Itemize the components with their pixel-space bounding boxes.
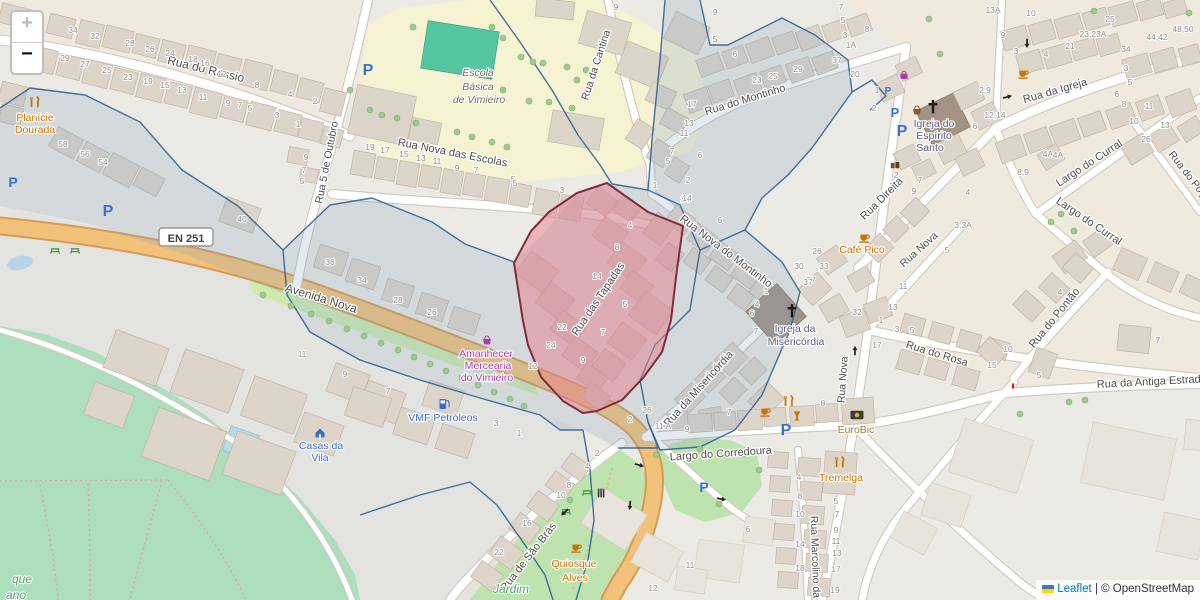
- house-number: 37: [832, 55, 842, 65]
- building: [777, 571, 798, 588]
- vmf-petroleos-label: VMF Petróleos: [408, 412, 477, 424]
- house-number: 40: [237, 214, 247, 224]
- house-number: 5: [1037, 370, 1042, 380]
- house-number: 7: [918, 175, 923, 185]
- house-number: 5: [841, 15, 846, 25]
- leaflet-link[interactable]: Leaflet: [1057, 583, 1092, 595]
- house-number: 26: [145, 44, 155, 54]
- ukraine-flag-icon: [1042, 585, 1054, 593]
- parking-icon: P: [699, 479, 708, 495]
- house-number: 19: [143, 76, 153, 86]
- house-number: 10: [1026, 8, 1036, 18]
- tree-icon: [530, 59, 536, 65]
- tree-icon: [308, 311, 314, 317]
- tree-icon: [410, 24, 416, 30]
- house-number: 2: [313, 96, 318, 106]
- house-number: 5: [910, 325, 915, 335]
- house-number: 34: [68, 25, 78, 35]
- tremelga-label: Tremelga: [819, 472, 863, 484]
- tree-icon: [394, 115, 400, 121]
- building: [799, 481, 822, 500]
- tree-icon: [413, 120, 419, 126]
- house-number: 12: [217, 69, 227, 79]
- house-number: 4: [755, 299, 760, 309]
- house-number: 10: [556, 490, 566, 500]
- house-number: 34: [357, 275, 367, 285]
- house-number: 17: [380, 145, 390, 155]
- house-number: 32: [90, 31, 100, 41]
- house-number: 8: [821, 398, 826, 408]
- zoom-in-button[interactable]: +: [12, 12, 42, 43]
- house-number: 3: [843, 30, 848, 40]
- house-number: 4: [797, 472, 802, 482]
- house-number: 8: [865, 24, 870, 34]
- house-number: 7: [754, 326, 759, 336]
- house-number: 11: [832, 536, 841, 546]
- house-number: 2: [686, 175, 691, 185]
- planicie-dourada-label: Planície: [16, 112, 54, 124]
- tree-icon: [260, 292, 266, 298]
- house-number: 25: [102, 65, 112, 75]
- house-number: 9: [713, 7, 718, 17]
- house-number: 12: [528, 361, 538, 371]
- house-number: 12;14: [984, 110, 1006, 120]
- tree-icon: [540, 60, 546, 66]
- house-number: 15: [399, 149, 409, 159]
- house-number: 24: [165, 48, 175, 58]
- house-number: 7: [835, 509, 840, 519]
- road-shield: EN 251: [159, 228, 213, 246]
- building: [775, 547, 796, 564]
- house-number: 32: [852, 307, 862, 317]
- house-number: 7: [302, 165, 307, 175]
- building: [1184, 419, 1200, 451]
- building: [374, 156, 398, 181]
- house-number: 37: [803, 277, 813, 287]
- igreja-espirito-santo-label: Santo: [916, 142, 944, 154]
- tree-icon: [288, 303, 294, 309]
- tree-icon: [500, 87, 506, 93]
- parking-icon: P: [8, 174, 17, 190]
- cafe-pico-label: Café Pico: [839, 244, 885, 256]
- house-number: 9: [226, 98, 231, 108]
- house-number: 22: [494, 547, 504, 557]
- park-label: que: [12, 572, 32, 586]
- house-number: 4: [628, 220, 633, 230]
- house-number: 13: [888, 302, 898, 312]
- zoom-out-button[interactable]: −: [12, 43, 42, 73]
- tree-icon: [489, 24, 495, 30]
- tree-icon: [546, 99, 552, 105]
- house-number: 6: [718, 215, 723, 225]
- house-number: 2: [595, 448, 600, 458]
- house-number: 58: [58, 139, 68, 149]
- parking-icon: P: [897, 123, 908, 140]
- house-number: 7: [670, 146, 675, 156]
- house-number: 13: [416, 153, 426, 163]
- house-number: 4: [585, 461, 590, 471]
- house-number: 13: [684, 118, 694, 128]
- tree-icon: [443, 368, 449, 374]
- tree-icon: [326, 318, 332, 324]
- house-number: 1: [296, 119, 301, 129]
- tree-icon: [569, 105, 575, 111]
- house-number: 3: [1014, 46, 1019, 56]
- house-number: 1: [517, 428, 522, 438]
- traffic-signals-icon: [598, 489, 605, 498]
- house-number: 11: [298, 349, 307, 359]
- building: [350, 150, 376, 177]
- house-number: 44;42: [1146, 32, 1168, 42]
- house-number: 8: [1122, 99, 1127, 109]
- house-number: 23;23A: [1080, 29, 1107, 39]
- house-number: 11: [899, 281, 908, 291]
- tree-icon: [1186, 10, 1192, 16]
- house-number: 7: [839, 2, 844, 12]
- house-number: 13: [832, 548, 842, 558]
- house-number: 7: [238, 100, 243, 110]
- house-number: 26: [427, 307, 437, 317]
- tree-icon: [574, 77, 580, 83]
- house-number: 17: [872, 340, 882, 350]
- house-number: 13A: [985, 5, 1000, 15]
- house-number: 9: [834, 525, 839, 535]
- house-number: 7: [601, 327, 606, 337]
- tree-icon: [716, 501, 722, 507]
- igreja-misericordia-label: Misericórdia: [768, 336, 825, 348]
- house-number: 28: [393, 295, 403, 305]
- house-number: 1: [764, 286, 769, 296]
- building: [462, 172, 486, 197]
- house-number: 5: [713, 34, 718, 44]
- house-number: 23: [752, 75, 762, 85]
- house-number: 20: [850, 69, 860, 79]
- park-label: ano: [6, 588, 26, 600]
- amanhecer-mercearia-label: Mercearia: [465, 360, 512, 372]
- amanhecer-mercearia-label: Amanhecer: [459, 348, 513, 360]
- zoom-control: + −: [10, 10, 44, 75]
- building: [674, 566, 707, 594]
- attribution-bar: Leaflet | © OpenStreetMap: [1036, 580, 1200, 600]
- map-canvas[interactable]: PPPPPPPP Rua do RossioRua 5 de OutubroRu…: [0, 0, 1200, 600]
- tree-icon: [378, 340, 384, 346]
- building: [773, 523, 794, 540]
- tree-icon: [347, 87, 353, 93]
- tree-icon: [504, 144, 510, 150]
- house-number: 3;3A: [954, 220, 972, 230]
- quiosque-alves-label: Quiosque: [552, 558, 597, 570]
- house-number: 10: [1129, 116, 1139, 126]
- house-number: 11: [686, 560, 695, 570]
- house-number: 36: [325, 257, 335, 267]
- casas-da-vila-label: Casas da: [299, 440, 344, 452]
- house-number: 18: [188, 54, 198, 64]
- house-number: 13: [177, 85, 187, 95]
- house-number: 30: [794, 261, 804, 271]
- house-number: 11: [680, 128, 689, 138]
- house-number: 3: [1124, 63, 1129, 73]
- house-number: 5: [248, 103, 253, 113]
- house-number: 2;9: [979, 85, 991, 95]
- tree-icon: [427, 361, 433, 367]
- eurobic-label: EuroBic: [838, 424, 875, 436]
- house-number: 7: [386, 386, 391, 396]
- escola-basica-label: de Vimieiro: [453, 94, 505, 106]
- house-number: 5: [513, 178, 518, 188]
- house-number: 25: [1105, 14, 1115, 24]
- house-number: 6: [746, 524, 751, 534]
- house-number: 4A: [1053, 150, 1064, 160]
- tree-icon: [518, 54, 524, 60]
- house-number: 17: [687, 99, 697, 109]
- house-number: 15: [987, 360, 997, 370]
- tree-icon: [937, 51, 943, 57]
- building: [396, 160, 420, 187]
- house-number: 14: [795, 539, 805, 549]
- house-number: 7: [474, 165, 479, 175]
- road-shield-text: EN 251: [168, 233, 205, 245]
- building: [1117, 324, 1152, 353]
- tree-icon: [454, 129, 460, 135]
- building: [815, 403, 838, 422]
- house-number: 19: [365, 142, 375, 152]
- tree-icon: [567, 497, 573, 503]
- igreja-espirito-santo-label: Igreja do: [914, 118, 955, 130]
- house-number: 1A: [846, 40, 857, 50]
- leaflet-map-app: PPPPPPPP Rua do RossioRua 5 de OutubroRu…: [0, 0, 1200, 600]
- house-number: 4: [1058, 287, 1063, 297]
- house-number: 22: [557, 322, 567, 332]
- house-number: 9: [343, 369, 348, 379]
- tree-icon: [1058, 211, 1064, 217]
- house-number: 14: [682, 193, 692, 203]
- igreja-misericordia-label: Igreja da: [775, 323, 816, 335]
- tree-icon: [367, 107, 373, 113]
- house-number: 9: [304, 152, 309, 162]
- tree-icon: [469, 134, 475, 140]
- house-number: 9: [1001, 30, 1006, 40]
- building: [769, 475, 790, 492]
- house-number: 24: [546, 340, 556, 350]
- house-number: 12: [648, 583, 658, 593]
- parking-icon: P: [363, 62, 374, 79]
- casas-da-vila-label: Vila: [311, 452, 328, 464]
- parking-icon: P: [891, 105, 900, 120]
- house-number: 8: [567, 480, 572, 490]
- house-number: 5: [1128, 77, 1133, 87]
- eurobic-icon: [851, 411, 864, 419]
- parking-icon: P: [103, 203, 114, 220]
- igreja-espirito-santo-label: Espírito: [916, 130, 952, 142]
- house-number: 27: [80, 59, 90, 69]
- house-number: 1: [879, 315, 884, 325]
- planicie-dourada-label: Dourada: [15, 124, 55, 136]
- house-number: 14: [592, 271, 602, 281]
- house-number: 26: [642, 405, 652, 415]
- building: [789, 405, 814, 427]
- house-number: 5: [945, 245, 950, 255]
- building: [418, 164, 442, 189]
- house-number: 7: [1156, 335, 1161, 345]
- house-number: 16: [522, 518, 532, 528]
- tree-icon: [507, 396, 513, 402]
- tree-icon: [1091, 8, 1097, 14]
- house-number: 5: [666, 156, 671, 166]
- tree-icon: [379, 112, 385, 118]
- tree-icon: [521, 403, 527, 409]
- tree-icon: [500, 35, 506, 41]
- house-number: 9: [912, 186, 917, 196]
- tree-icon: [653, 452, 659, 458]
- house-number: 3: [275, 110, 280, 120]
- house-number: 6: [973, 121, 978, 131]
- house-number: 2: [894, 170, 899, 180]
- house-number: 8: [255, 80, 260, 90]
- house-number: 8: [615, 242, 620, 252]
- quiosque-alves-label: Alves: [562, 572, 588, 584]
- house-number: 25: [768, 71, 778, 81]
- amanhecer-mercearia-label: do Vimieiro: [461, 372, 513, 384]
- house-number: 4: [966, 187, 971, 197]
- tree-icon: [564, 64, 570, 70]
- house-number: 8: [798, 491, 803, 501]
- house-number: 6: [750, 308, 755, 318]
- house-number: 56: [80, 149, 90, 159]
- house-number: 6: [1115, 89, 1120, 99]
- house-number: 6: [698, 150, 703, 160]
- house-number: 23: [123, 72, 133, 82]
- house-number: 1: [653, 180, 658, 190]
- house-number: 29: [60, 53, 70, 63]
- tree-icon: [1082, 397, 1088, 403]
- osm-link[interactable]: © OpenStreetMap: [1101, 583, 1194, 595]
- house-number: 10: [795, 509, 805, 519]
- park-label: Jardim: [492, 582, 529, 596]
- house-number: 29: [793, 64, 803, 74]
- house-number: 9: [614, 2, 619, 12]
- house-number: 9: [685, 424, 690, 434]
- house-number: 9: [581, 355, 586, 365]
- tree-icon: [489, 139, 495, 145]
- parking-icon: P: [885, 86, 892, 97]
- building: [771, 499, 792, 516]
- house-number: 8;9: [1017, 167, 1029, 177]
- house-number: 4: [1044, 49, 1049, 59]
- house-number: 13: [1160, 120, 1170, 130]
- house-number: 5: [834, 496, 839, 506]
- house-number: 19: [830, 585, 840, 595]
- parking-icon: P: [781, 422, 792, 439]
- gate-icon: [1012, 383, 1014, 388]
- house-number: 54: [98, 157, 108, 167]
- attribution-separator: |: [1095, 583, 1098, 595]
- escola-basica-label: Básica: [462, 81, 494, 93]
- tree-icon: [1048, 219, 1054, 225]
- house-number: 11 A: [655, 421, 672, 431]
- house-number: 21: [1065, 41, 1075, 51]
- house-number: 17: [831, 564, 841, 574]
- tree-icon: [756, 467, 762, 473]
- tree-icon: [491, 389, 497, 395]
- house-number: 3: [895, 324, 900, 334]
- house-number: 3: [494, 418, 499, 428]
- house-number: 11: [433, 156, 442, 166]
- tree-icon: [361, 333, 367, 339]
- tree-icon: [526, 98, 532, 104]
- house-number: 4: [288, 89, 293, 99]
- tree-icon: [926, 16, 932, 22]
- house-number: 11: [199, 92, 208, 102]
- house-number: 9: [455, 163, 460, 173]
- house-number: 5: [300, 176, 305, 186]
- building: [1156, 512, 1200, 560]
- house-number: 7: [727, 407, 732, 417]
- house-number: 16: [200, 58, 210, 68]
- house-number: 33: [819, 261, 829, 271]
- house-number: 3: [560, 185, 565, 195]
- house-number: 26: [1141, 134, 1151, 144]
- house-number: 11: [1145, 101, 1154, 111]
- house-number: 5: [623, 299, 628, 309]
- building: [484, 176, 510, 203]
- tree-icon: [1017, 411, 1023, 417]
- house-number: 2: [872, 103, 877, 113]
- building: [440, 168, 464, 195]
- house-number: 34: [1121, 44, 1131, 54]
- house-number: 18: [795, 563, 805, 573]
- house-number: 6: [733, 49, 738, 59]
- tree-icon: [395, 347, 401, 353]
- tree-icon: [1071, 228, 1077, 234]
- tree-icon: [411, 354, 417, 360]
- house-number: 28: [125, 38, 135, 48]
- tree-icon: [1066, 399, 1072, 405]
- house-number: 48;50: [1172, 24, 1194, 34]
- house-number: 1: [875, 85, 880, 95]
- house-number: 26: [812, 246, 822, 256]
- house-number: 15: [160, 80, 170, 90]
- escola-basica-label: Escola: [462, 67, 494, 79]
- house-number: 2: [628, 414, 633, 424]
- house-number: 10: [1003, 344, 1013, 354]
- tree-icon: [344, 326, 350, 332]
